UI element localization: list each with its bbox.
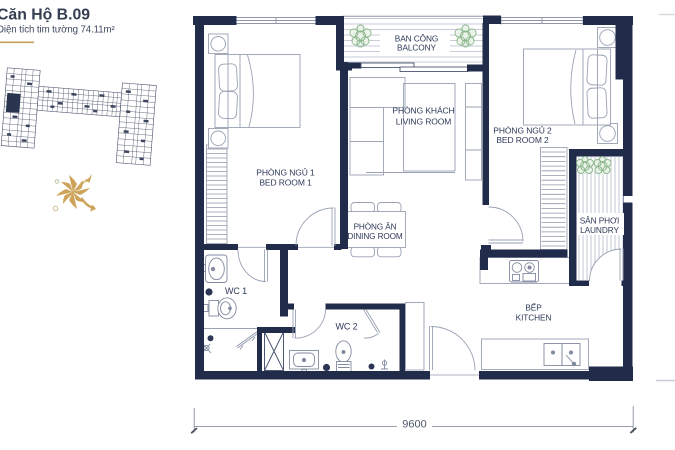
svg-text:BẾP: BẾP (525, 303, 542, 313)
svg-text:SÂN PHƠI: SÂN PHƠI (580, 216, 620, 226)
svg-text:DINING ROOM: DINING ROOM (347, 232, 403, 241)
svg-text:Căn Hộ B.09: Căn Hộ B.09 (0, 7, 90, 24)
svg-text:PHÒNG ĂN: PHÒNG ĂN (354, 222, 397, 232)
svg-text:PHÒNG NGỦ 1: PHÒNG NGỦ 1 (256, 167, 315, 178)
svg-text:BED ROOM 1: BED ROOM 1 (259, 178, 312, 188)
svg-text:PHÒNG KHÁCH: PHÒNG KHÁCH (392, 106, 454, 116)
svg-text:KITCHEN: KITCHEN (516, 313, 552, 323)
svg-text:BALCONY: BALCONY (397, 43, 437, 53)
svg-text:BED ROOM 2: BED ROOM 2 (496, 135, 549, 145)
svg-text:LIVING ROOM: LIVING ROOM (396, 117, 452, 127)
svg-text:Diện tích tim tường 74.11m²: Diện tích tim tường 74.11m² (0, 25, 116, 36)
svg-text:LAUNDRY: LAUNDRY (580, 225, 619, 235)
svg-text:PHÒNG NGỦ 2: PHÒNG NGỦ 2 (493, 125, 552, 136)
svg-text:9600: 9600 (402, 419, 426, 431)
svg-text:WC 2: WC 2 (335, 322, 357, 332)
svg-text:WC 1: WC 1 (225, 286, 247, 296)
